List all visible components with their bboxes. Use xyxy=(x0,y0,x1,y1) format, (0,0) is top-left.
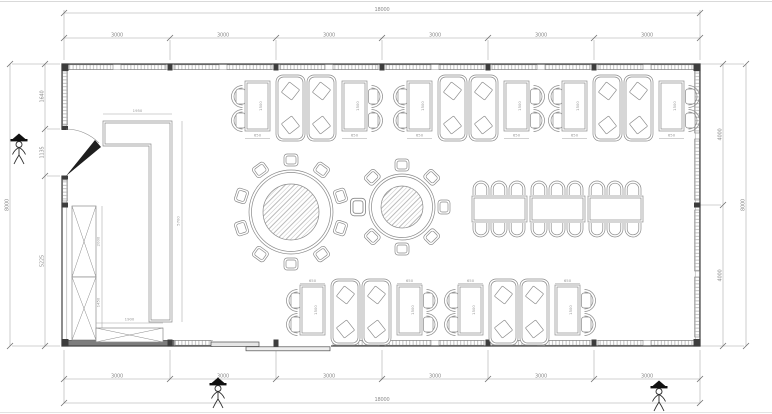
entry-door-opening xyxy=(60,130,69,176)
dim-label-table-width: 650 xyxy=(254,133,262,138)
dim-label-table-width: 650 xyxy=(564,278,572,283)
door-leaf xyxy=(66,140,101,176)
dim-label-right-seg: 4000 xyxy=(718,270,724,282)
dim-label-table-width: 650 xyxy=(309,278,317,283)
dim-label-cabinet-bottom: 1900 xyxy=(125,317,135,322)
person-figure-left xyxy=(11,134,28,165)
dim-label-top-seg: 3000 xyxy=(323,32,335,38)
dim-label-table-length: 1500 xyxy=(355,101,360,111)
dim-label-table-width: 650 xyxy=(416,133,424,138)
dim-label-left-seg: 5225 xyxy=(40,255,46,267)
dim-label-bottom-seg: 3000 xyxy=(429,373,441,379)
dim-label-right-seg: 4000 xyxy=(718,129,724,141)
dim-label-bottom-seg: 3000 xyxy=(535,373,547,379)
floor-plan-canvas: 1950 5700 2000 1450 1900 650 650 650 650… xyxy=(0,0,772,414)
dim-label-bottom-seg: 3000 xyxy=(641,373,653,379)
dim-label-table-length: 1500 xyxy=(575,101,580,111)
dim-label-left-seg: 1640 xyxy=(40,91,46,103)
dim-label-table-width: 650 xyxy=(351,133,359,138)
round-table-small xyxy=(351,159,451,255)
floor-plan-viewport: 1950 5700 2000 1450 1900 650 650 650 650… xyxy=(0,0,772,414)
dim-label-bottom-seg: 3000 xyxy=(111,373,123,379)
dim-label-left-seg: 1135 xyxy=(40,147,46,159)
dim-label-bottom-seg: 3000 xyxy=(323,373,335,379)
dim-label-counter-length: 5700 xyxy=(176,216,181,226)
service-counter xyxy=(103,121,172,322)
dim-label-right-total: 8000 xyxy=(741,199,747,211)
dim-label-cabinet-upper: 2000 xyxy=(96,236,101,246)
dim-label-table-length: 1500 xyxy=(672,101,677,111)
dim-label-counter-width: 1950 xyxy=(133,108,143,113)
dim-label-table-length: 1500 xyxy=(517,101,522,111)
dim-label-top-seg: 3000 xyxy=(217,32,229,38)
dim-label-table-width: 650 xyxy=(513,133,521,138)
dim-label-bottom-seg: 3000 xyxy=(217,373,229,379)
dim-label-top-seg: 3000 xyxy=(641,32,653,38)
dim-label-table-length: 1500 xyxy=(420,101,425,111)
entry-door xyxy=(66,129,101,176)
banquet-tables xyxy=(472,181,643,237)
dim-label-left-total: 8000 xyxy=(5,199,11,211)
dim-label-top-seg: 3000 xyxy=(111,32,123,38)
dim-label-table-length: 1500 xyxy=(258,101,263,111)
dim-label-top-total: 18000 xyxy=(375,7,390,13)
dim-label-table-length: 1500 xyxy=(471,305,476,315)
dim-label-table-length: 1500 xyxy=(568,305,573,315)
dim-label-table-width: 650 xyxy=(668,133,676,138)
dim-label-bottom-total: 18000 xyxy=(375,397,390,403)
person-figure-bottom-center xyxy=(210,378,227,409)
dim-label-table-length: 1500 xyxy=(410,305,415,315)
dim-label-cabinet-lower: 1450 xyxy=(96,297,101,307)
round-table-large xyxy=(234,154,349,270)
furniture xyxy=(72,75,700,345)
person-figure-bottom-right xyxy=(651,381,668,412)
dim-label-top-seg: 3000 xyxy=(429,32,441,38)
dim-label-table-width: 650 xyxy=(571,133,579,138)
dim-label-table-width: 650 xyxy=(467,278,475,283)
dim-label-table-length: 1500 xyxy=(313,305,318,315)
dim-label-table-width: 650 xyxy=(406,278,414,283)
dim-label-top-seg: 3000 xyxy=(535,32,547,38)
